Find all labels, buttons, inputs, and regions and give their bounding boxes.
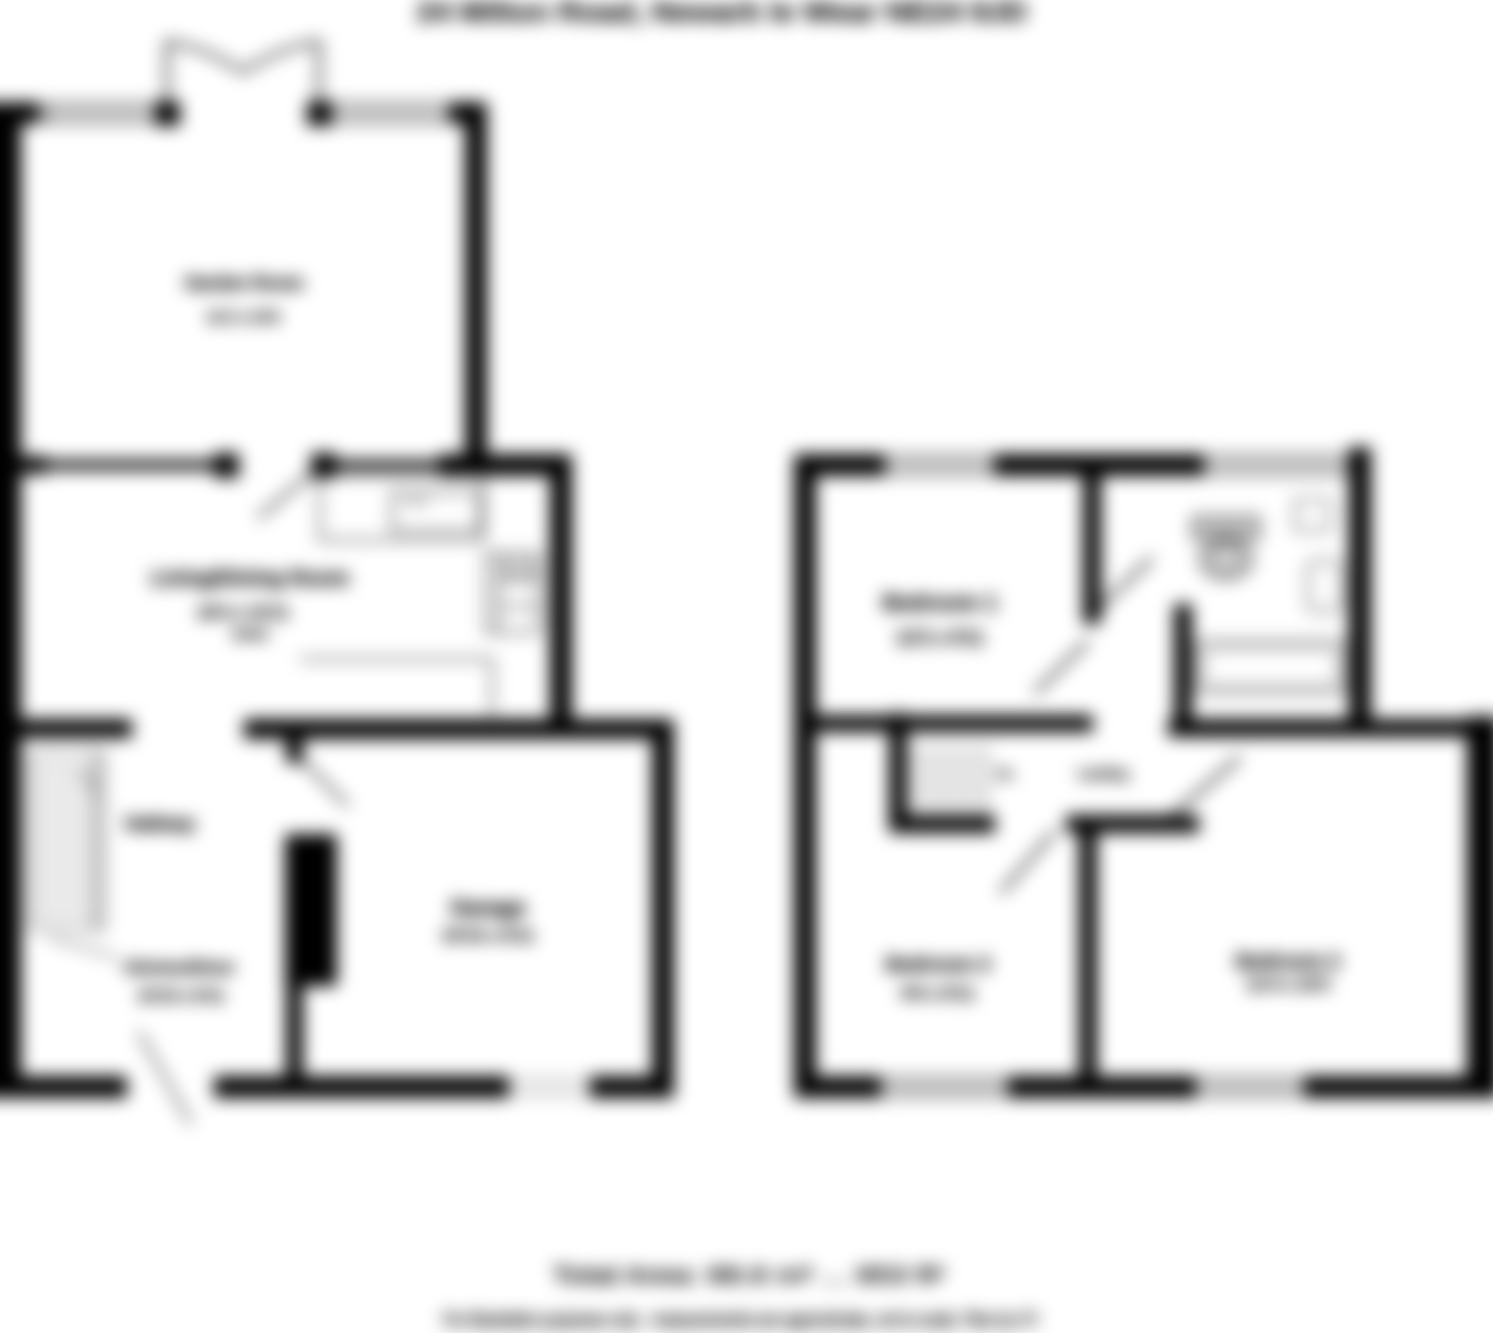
svg-text:Living/Dining Room: Living/Dining Room xyxy=(151,567,349,590)
svg-text:Landing: Landing xyxy=(1078,766,1129,781)
svg-text:Hallway: Hallway xyxy=(125,814,196,835)
svg-text:Bedroom 3: Bedroom 3 xyxy=(886,954,990,976)
svg-text:Kitchen/Diner: Kitchen/Diner xyxy=(125,958,236,977)
svg-text:For illustration purposes only: For illustration purposes only - measure… xyxy=(443,1310,1039,1331)
svg-text:11'2 x 10'9: 11'2 x 10'9 xyxy=(206,309,279,326)
svg-text:Bedroom 1: Bedroom 1 xyxy=(883,590,998,615)
svg-text:18'4 x 10'11: 18'4 x 10'11 xyxy=(197,603,289,622)
svg-text:Garden Room: Garden Room xyxy=(184,273,303,293)
svg-text:15'10 x 8'11: 15'10 x 8'11 xyxy=(442,926,534,945)
svg-text:12'2 x 9'11: 12'2 x 9'11 xyxy=(896,628,984,648)
svg-text:Total Area: 88.6 m² ... 953 ft: Total Area: 88.6 m² ... 953 ft² xyxy=(552,1262,944,1288)
svg-text:Garage: Garage xyxy=(450,895,526,920)
svg-text:9'6 x 8'11: 9'6 x 8'11 xyxy=(901,984,974,1003)
svg-text:Dn: Dn xyxy=(997,767,1013,781)
svg-text:11'4 x 10'3: 11'4 x 10'3 xyxy=(1247,975,1330,994)
svg-text:Bedroom 2: Bedroom 2 xyxy=(1236,951,1340,973)
svg-text:10'10 x 8'11: 10'10 x 8'11 xyxy=(138,988,225,1005)
svg-text:24 Milton Road, Newark le Wear: 24 Milton Road, Newark le Wear NE24 9JD xyxy=(417,0,1027,27)
svg-text:(max): (max) xyxy=(233,626,268,641)
